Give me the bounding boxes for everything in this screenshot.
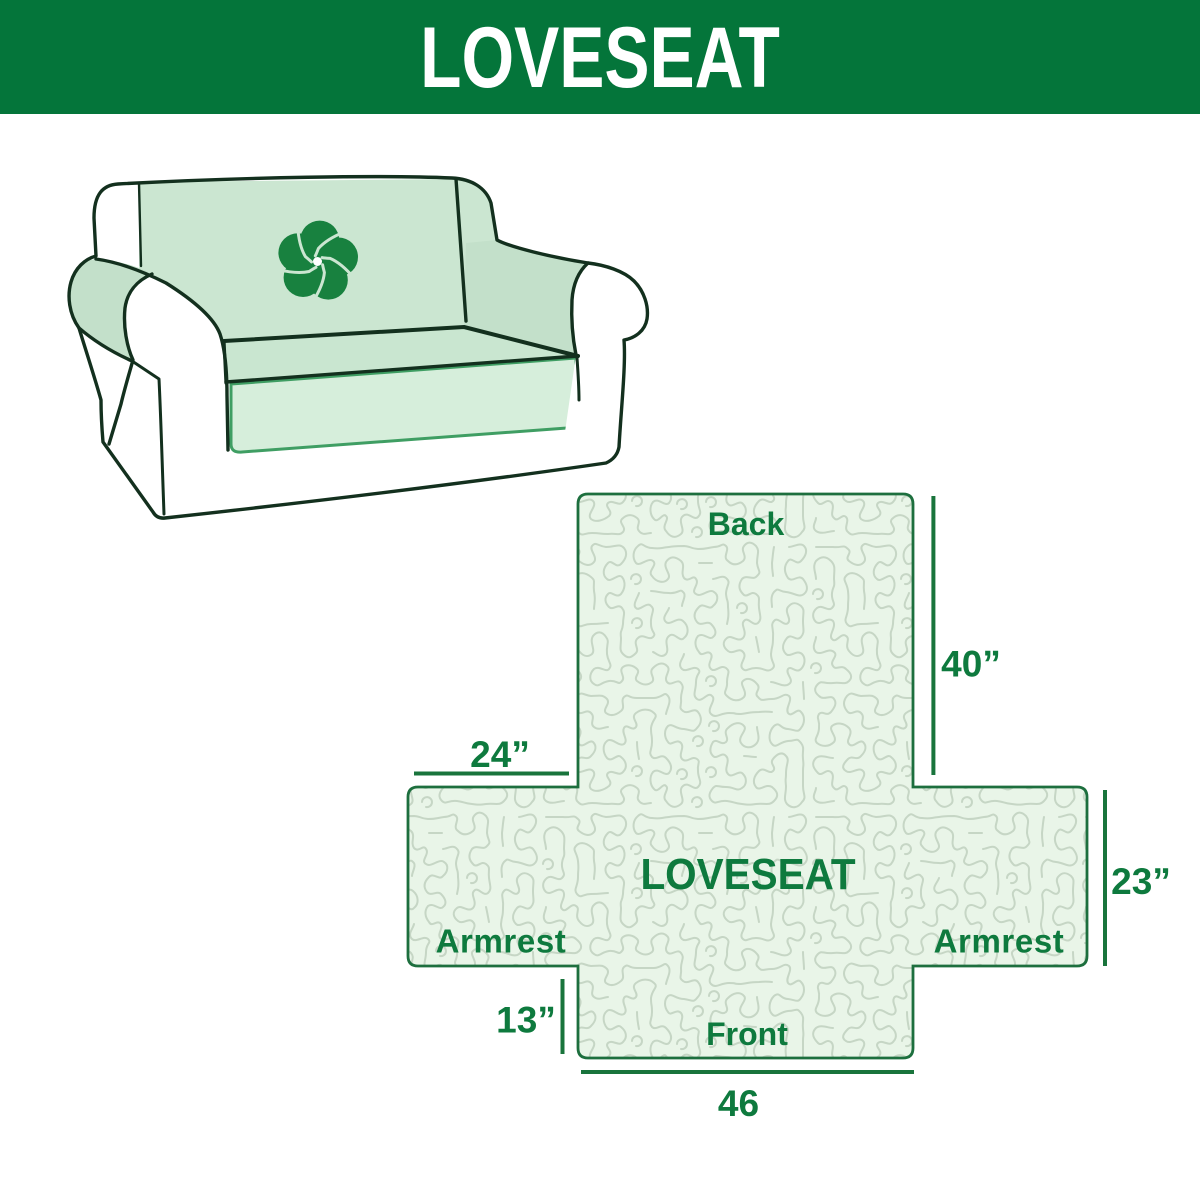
svg-text:40”: 40” bbox=[941, 644, 1001, 685]
svg-text:Front: Front bbox=[706, 1016, 788, 1052]
svg-text:Armrest: Armrest bbox=[934, 923, 1065, 960]
svg-text:13”: 13” bbox=[496, 1000, 556, 1041]
svg-text:Back: Back bbox=[708, 506, 785, 542]
svg-text:LOVESEAT: LOVESEAT bbox=[640, 849, 855, 898]
svg-text:46: 46 bbox=[718, 1083, 759, 1124]
svg-text:23”: 23” bbox=[1111, 861, 1171, 902]
svg-text:Armrest: Armrest bbox=[436, 923, 567, 960]
svg-text:24”: 24” bbox=[470, 734, 530, 775]
